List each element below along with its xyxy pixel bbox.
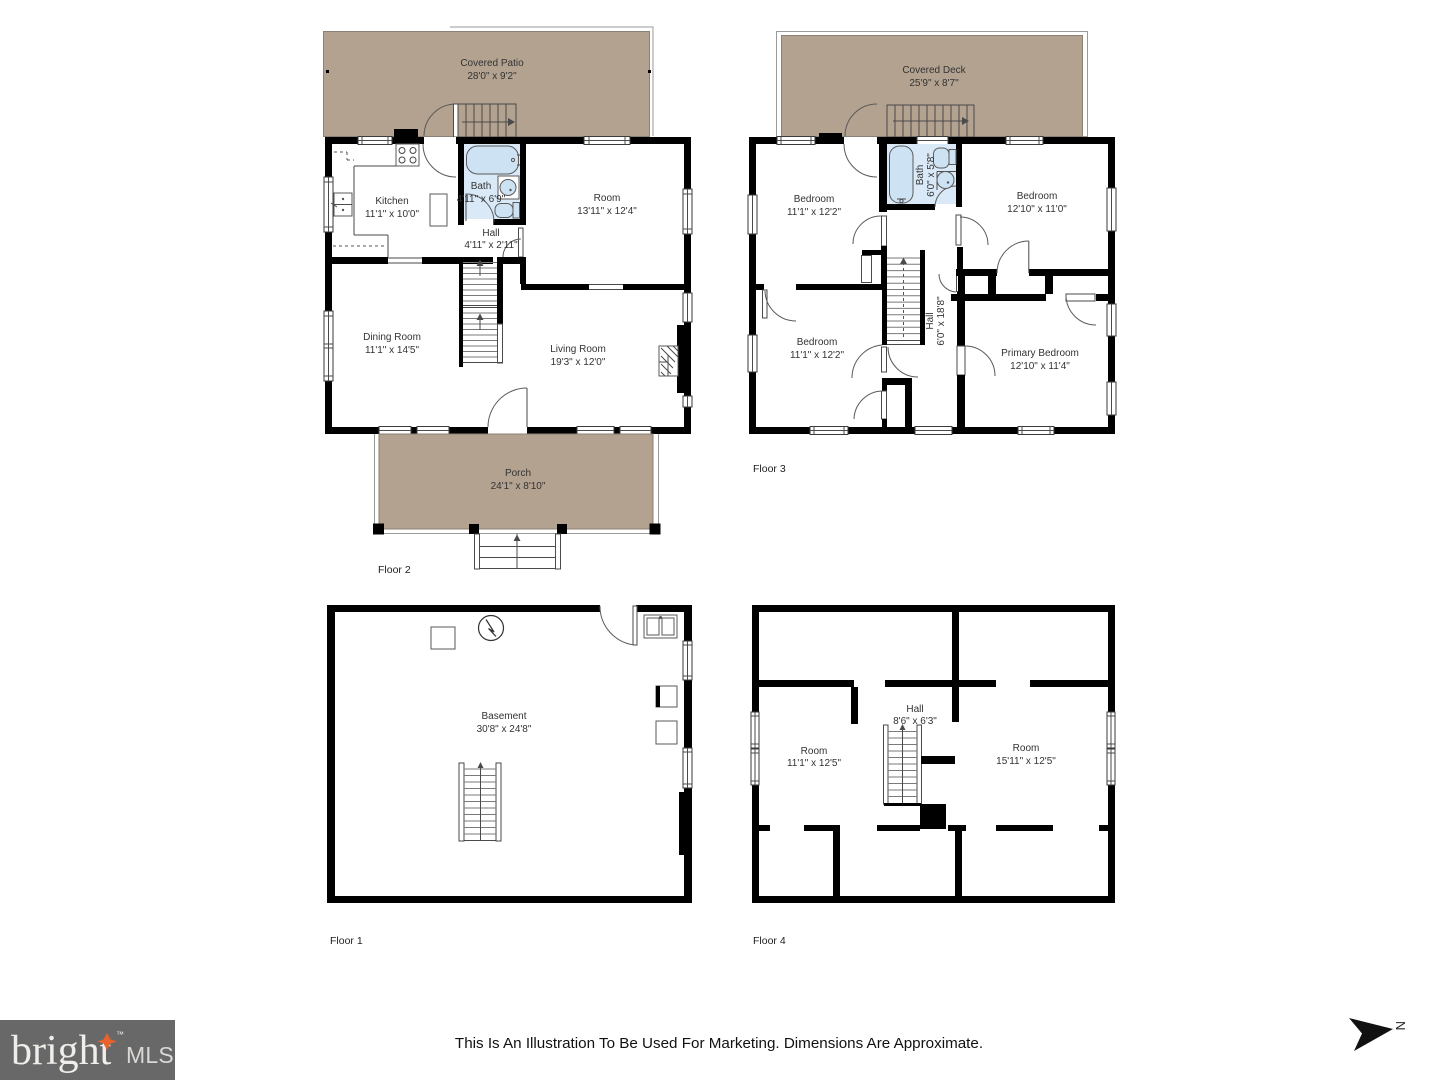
svg-text:Hall: Hall [482,228,499,239]
svg-text:4'11" x 6'9": 4'11" x 6'9" [457,194,506,205]
svg-text:Floor 1: Floor 1 [330,935,363,947]
svg-text:12'10" x 11'0": 12'10" x 11'0" [1007,204,1067,215]
svg-text:25'9" x 8'7": 25'9" x 8'7" [909,78,959,89]
svg-text:Primary Bedroom: Primary Bedroom [1001,348,1079,359]
svg-text:28'0" x 9'2": 28'0" x 9'2" [467,71,517,82]
svg-text:11'1" x 12'2": 11'1" x 12'2" [787,207,842,218]
svg-text:19'3" x 12'0": 19'3" x 12'0" [551,357,606,368]
svg-text:8'6" x 6'3": 8'6" x 6'3" [893,716,937,727]
svg-text:Bedroom: Bedroom [794,194,835,205]
svg-text:Floor 4: Floor 4 [753,935,786,947]
svg-text:Bath: Bath [915,165,926,186]
svg-text:Kitchen: Kitchen [375,196,408,207]
svg-text:13'11" x 12'4": 13'11" x 12'4" [577,206,637,217]
svg-text:Bath: Bath [471,181,492,192]
svg-text:24'1" x 8'10": 24'1" x 8'10" [491,481,546,492]
svg-text:6'0" x 5'8": 6'0" x 5'8" [926,153,937,197]
svg-text:N: N [1393,1021,1408,1030]
svg-text:6'0" x 18'8": 6'0" x 18'8" [936,296,947,346]
svg-text:11'1" x 12'5": 11'1" x 12'5" [787,758,842,769]
svg-text:Porch: Porch [505,468,531,479]
svg-text:Room: Room [801,746,828,757]
svg-text:Bedroom: Bedroom [1017,191,1058,202]
svg-text:Covered Patio: Covered Patio [460,58,524,69]
svg-text:Hall: Hall [906,704,923,715]
svg-text:11'1" x 12'2": 11'1" x 12'2" [790,350,845,361]
svg-text:Room: Room [594,193,621,204]
svg-text:This Is An Illustration To Be: This Is An Illustration To Be Used For M… [455,1035,983,1052]
svg-text:Living Room: Living Room [550,344,606,355]
svg-text:Dining Room: Dining Room [363,332,421,343]
svg-text:bright: bright [11,1028,112,1074]
svg-text:Bedroom: Bedroom [797,337,838,348]
svg-text:Hall: Hall [925,312,936,329]
svg-text:MLS: MLS [126,1042,174,1068]
svg-text:Floor 3: Floor 3 [753,463,786,475]
svg-text:Room: Room [1013,743,1040,754]
svg-text:4'11" x 2'11": 4'11" x 2'11" [464,240,518,251]
svg-text:Floor 2: Floor 2 [378,564,411,576]
svg-text:12'10" x 11'4": 12'10" x 11'4" [1010,361,1070,372]
svg-text:Covered Deck: Covered Deck [902,65,966,76]
svg-text:30'8" x 24'8": 30'8" x 24'8" [477,724,532,735]
svg-text:11'1" x 14'5": 11'1" x 14'5" [365,345,420,356]
svg-text:11'1" x 10'0": 11'1" x 10'0" [365,209,420,220]
svg-text:Basement: Basement [481,711,526,722]
svg-text:™: ™ [116,1030,124,1039]
svg-text:15'11" x 12'5": 15'11" x 12'5" [996,756,1056,767]
